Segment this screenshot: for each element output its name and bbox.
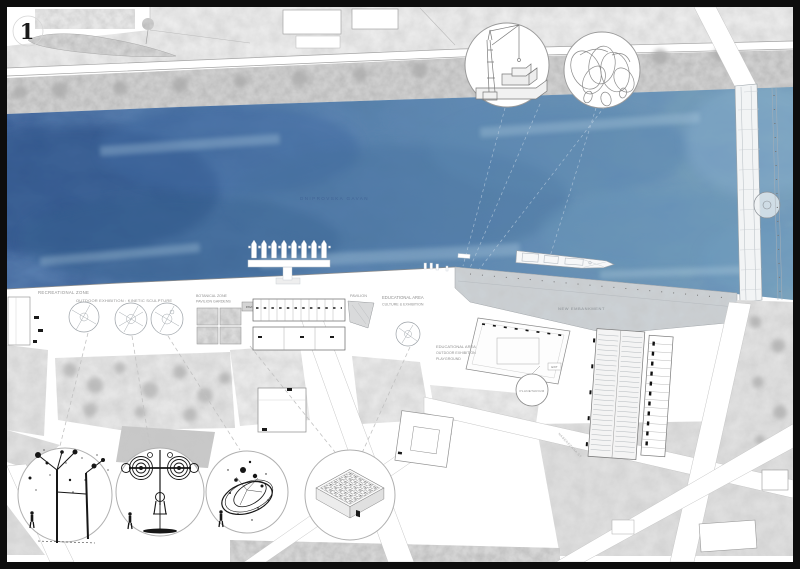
pavilion-gardens-label: PAVILION GARDENS <box>196 300 231 304</box>
building-footprint <box>352 9 398 29</box>
city-block <box>35 9 135 29</box>
planetarium-label: PLANETARIUM <box>519 389 544 393</box>
building-footprint <box>296 36 340 48</box>
playground-label: PLAYGROUND <box>436 357 461 361</box>
bridge-pier-circle <box>754 192 780 218</box>
callout-ribbon <box>564 32 640 108</box>
building-footprint <box>699 520 757 552</box>
exit-label-box: EXIT <box>548 363 561 370</box>
river-water: DNIPROVSKA GAVAN <box>0 85 800 300</box>
building-footprint <box>612 520 634 534</box>
outdoor-exhibition-kinetic-label: OUTDOOR EXHIBITION : KINETIC SCULPTURE <box>76 298 172 303</box>
courtyard-building <box>395 411 453 468</box>
masterplan-sheet: DNIPROVSKA GAVAN NEW EMBANKMENT <box>0 0 800 569</box>
new-embankment-label: NEW EMBANKMENT <box>558 306 605 311</box>
culture-exhibition-label: CULTURE & EXHIBITION <box>382 303 424 307</box>
callout-maze-pavilion <box>305 450 395 540</box>
pavilion-label: PAVILION <box>350 294 367 298</box>
building-footprint <box>258 388 306 432</box>
tree <box>142 18 154 30</box>
masterplan-drawing: DNIPROVSKA GAVAN NEW EMBANKMENT <box>0 0 800 569</box>
educational-area-label-1: EDUCATIONAL AREA <box>382 295 424 300</box>
recreational-zone-label: RECREATIONAL ZONE <box>38 290 89 295</box>
outdoor-exhibition-label: OUTDOOR EXHIBITION <box>436 351 476 355</box>
educational-area-label-2: EDUCATIONAL AREA <box>436 344 476 349</box>
building-footprint <box>762 470 788 490</box>
building-footprint <box>8 297 30 345</box>
building-footprint <box>283 10 341 34</box>
botanical-zone-label: BOTANICAL ZONE <box>196 294 228 298</box>
exit-label: EXIT <box>551 365 558 369</box>
callout-mobile-sculpture <box>18 448 112 543</box>
callout-kinetic-rings <box>116 448 204 536</box>
callout-spiral-sculpture <box>206 451 288 533</box>
sheet-number: 1 <box>20 19 35 44</box>
water-name-label: DNIPROVSKA GAVAN <box>300 196 369 201</box>
callout-crane <box>465 23 549 107</box>
